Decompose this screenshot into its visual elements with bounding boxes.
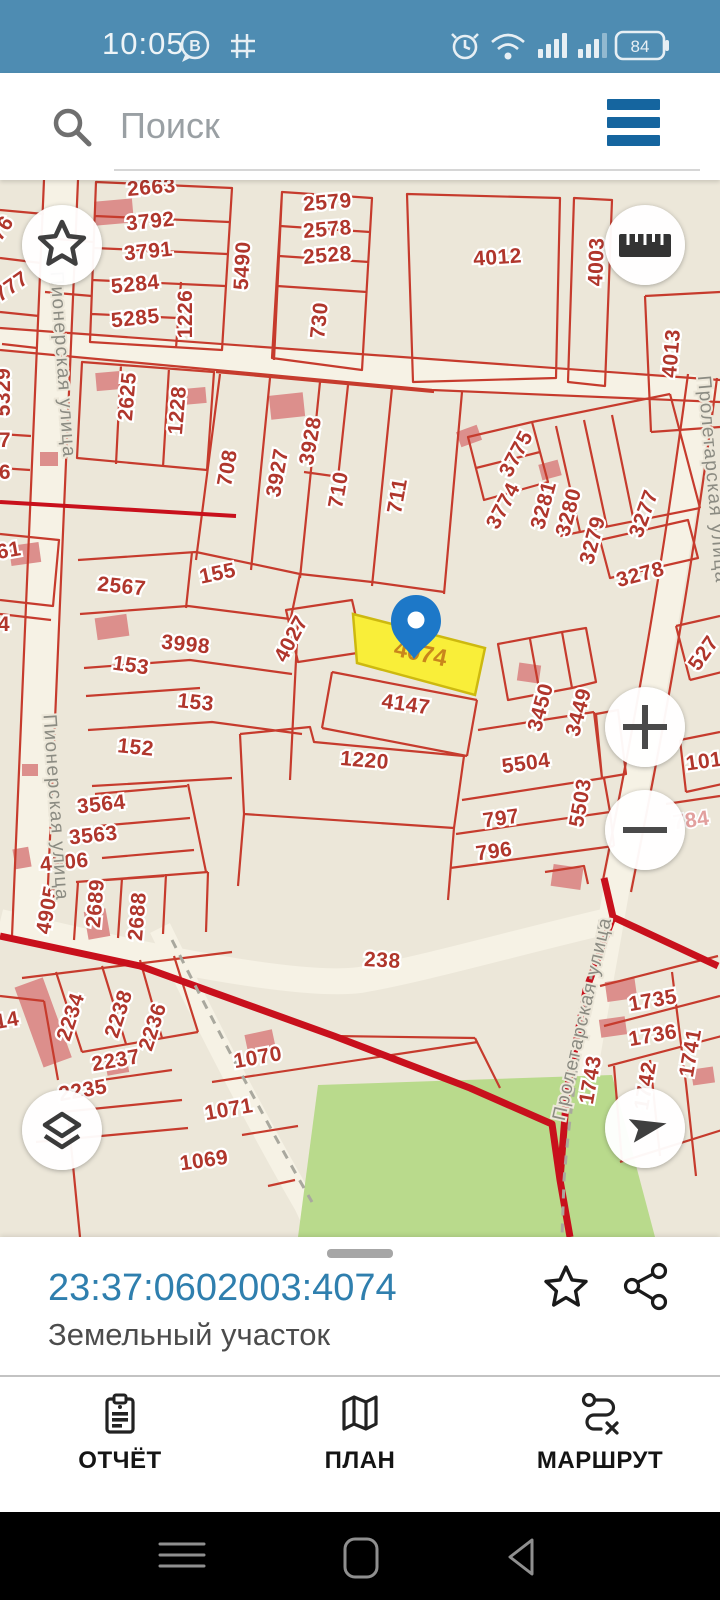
clock-text: 10:05 — [102, 26, 185, 62]
recents-button[interactable] — [158, 1536, 206, 1576]
measure-button[interactable] — [605, 205, 685, 285]
parcel-label: 2625 — [114, 371, 141, 422]
alarm-icon — [452, 34, 478, 58]
locate-button[interactable] — [605, 1088, 685, 1168]
home-button[interactable] — [342, 1536, 382, 1580]
favorites-button[interactable] — [22, 205, 102, 285]
parcel-label: 153 — [176, 689, 215, 716]
parcel-label: 2688 — [124, 891, 151, 942]
notification-icons: B — [175, 0, 285, 73]
search-underline — [114, 169, 700, 171]
bottom-navigation: ОТЧЁТ ПЛАН МАРШРУТ — [0, 1375, 720, 1514]
nav-plan-label: ПЛАН — [325, 1447, 396, 1475]
bookmark-star-icon[interactable] — [540, 1262, 592, 1314]
nav-report[interactable]: ОТЧЁТ — [20, 1391, 220, 1475]
clipboard-icon — [97, 1391, 143, 1437]
plus-icon — [621, 703, 669, 751]
parcel-label: 4013 — [658, 328, 685, 379]
bottom-sheet: 23:37:0602003:4074 Земельный участок — [0, 1237, 720, 1375]
parcel-label: 6 — [0, 461, 11, 484]
parcel-label: 4012 — [472, 244, 522, 270]
parcel-label: 1226 — [174, 290, 197, 339]
parcel-label: 1228 — [164, 385, 191, 436]
layers-icon — [36, 1104, 88, 1156]
wifi-dot — [505, 53, 512, 60]
parcel-label: 2689 — [82, 878, 109, 929]
navigation-arrow-icon — [619, 1102, 671, 1154]
nav-route-label: МАРШРУТ — [537, 1447, 663, 1475]
ruler-icon — [617, 225, 673, 265]
menu-hamburger-icon[interactable] — [607, 99, 660, 153]
signal-icon-1 — [538, 33, 567, 58]
search-input[interactable] — [118, 97, 582, 155]
parcel-label: 5329 — [0, 368, 15, 417]
svg-text:B: B — [189, 38, 201, 55]
parcel-label: 7 — [0, 429, 11, 452]
parcel-label: 2579 — [302, 189, 353, 216]
folded-map-icon — [337, 1391, 383, 1437]
park-area — [298, 1075, 655, 1237]
back-button[interactable] — [502, 1536, 542, 1578]
parcel-label: 1220 — [339, 747, 390, 774]
route-icon — [577, 1391, 623, 1437]
drag-handle[interactable] — [327, 1249, 393, 1258]
zoom-in-button[interactable] — [605, 687, 685, 767]
parcel-label: 238 — [363, 948, 401, 973]
parcel-type-label: Земельный участок — [48, 1317, 330, 1353]
parcel-label: 101 — [684, 748, 720, 776]
nav-plan[interactable]: ПЛАН — [260, 1391, 460, 1475]
status-bar: 10:05 B — [0, 0, 720, 73]
search-icon — [50, 105, 94, 149]
system-status-icons: 84 — [440, 0, 720, 73]
star-icon — [36, 219, 88, 271]
grid-icon — [231, 34, 255, 58]
nav-report-label: ОТЧЁТ — [78, 1447, 161, 1475]
zoom-out-button[interactable] — [605, 790, 685, 870]
parcel-label: 2578 — [302, 216, 353, 243]
layers-button[interactable] — [22, 1090, 102, 1170]
battery-icon: 84 — [616, 32, 669, 59]
android-navigation-bar — [0, 1512, 720, 1600]
parcel-label: 4 — [0, 613, 10, 636]
nav-route[interactable]: МАРШРУТ — [500, 1391, 700, 1475]
parcel-label: 730 — [306, 301, 333, 340]
parcel-label: 5490 — [230, 241, 256, 291]
wifi-icon — [492, 35, 524, 49]
battery-percent: 84 — [631, 37, 650, 56]
parcel-label: 152 — [116, 734, 155, 761]
cadastral-number-link[interactable]: 23:37:0602003:4074 — [48, 1267, 397, 1310]
signal-icon-2 — [578, 33, 607, 58]
minus-icon — [621, 806, 669, 854]
parcel-label: 2528 — [302, 242, 353, 269]
map-container[interactable]: 7767772663379237915284528512265490730257… — [0, 180, 720, 1237]
share-icon[interactable] — [622, 1262, 674, 1314]
search-bar — [0, 73, 720, 180]
parcel-label: 61 — [0, 537, 23, 564]
